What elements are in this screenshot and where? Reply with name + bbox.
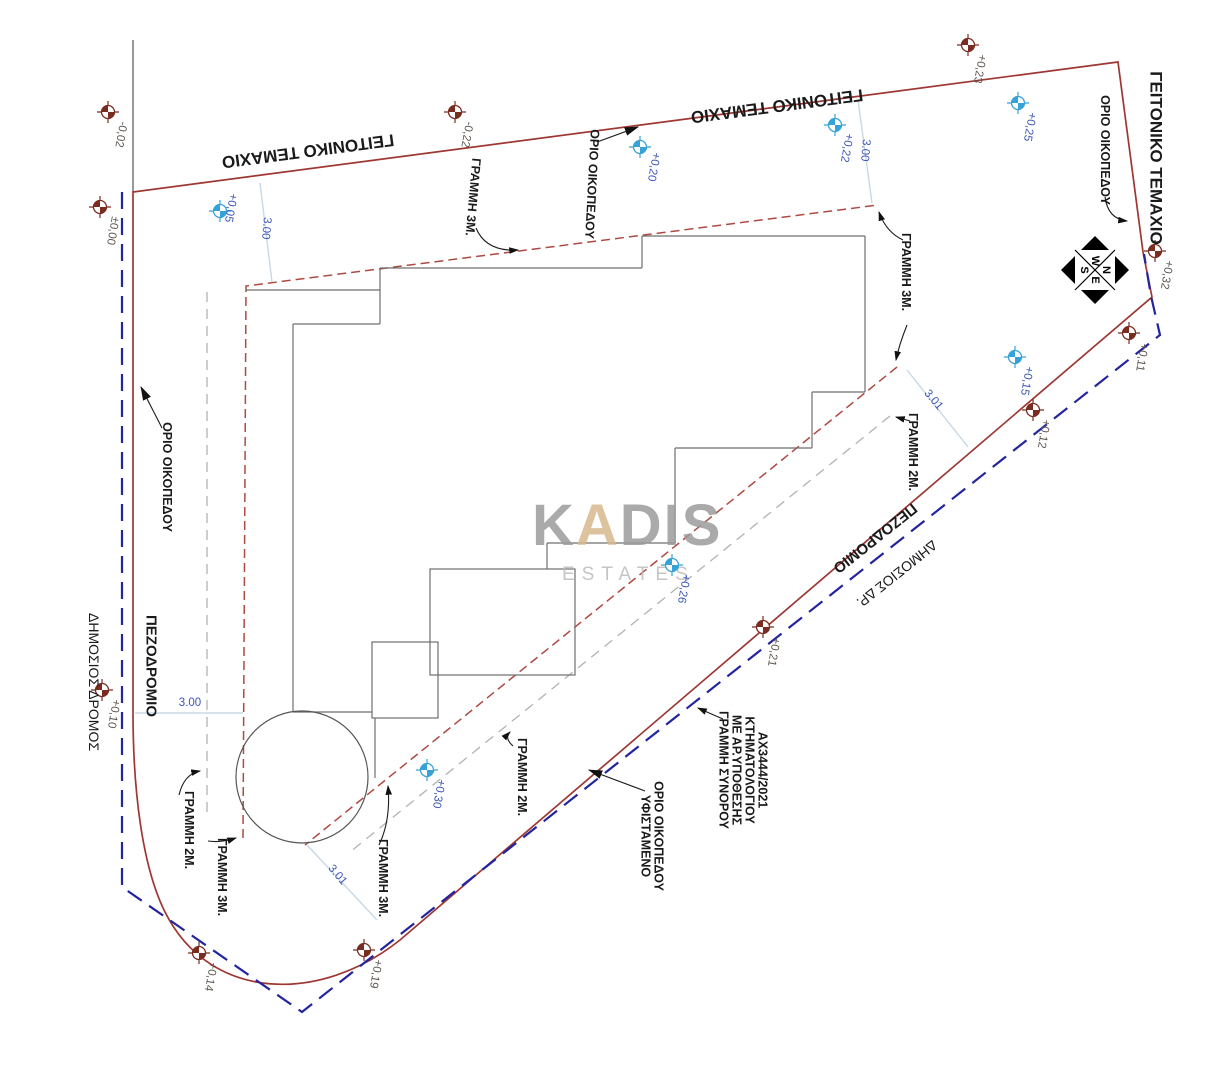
benchmark-marker-icon	[89, 196, 111, 218]
line-3m-top-left-line-0: ΓΡΑΜΜΗ 3Μ.	[463, 157, 484, 236]
plot-limit-right-line-0: ΟΡΙΟ ΟΙΚΟΠΕΔΟΥ	[1098, 95, 1112, 205]
leader-line-2m-bottom-mid	[508, 732, 513, 746]
elevation-label: +0,19	[367, 958, 384, 989]
benchmark-marker-icon	[416, 759, 438, 781]
elevation-label: +0,25	[1021, 111, 1038, 142]
elevation-label: +0,20	[645, 151, 662, 182]
benchmark-marker-icon	[97, 101, 119, 123]
elevation-label: +0,22	[838, 132, 855, 163]
elevation-label: +0,30	[430, 778, 447, 809]
elevation-label: -0,22	[458, 120, 474, 148]
elevation-label: +0,32	[1158, 259, 1175, 290]
compass-letter-right: N	[1100, 266, 1112, 274]
leader-arrows	[141, 127, 1127, 845]
elevation-label: ±0,00	[104, 215, 121, 245]
line-2m-right-line-0: ΓΡΑΜΜΗ 2Μ.	[906, 413, 920, 491]
elevation-label: +0,05	[222, 192, 239, 223]
benchmark-marker-icon	[444, 101, 466, 123]
elevation-label: +0,15	[1018, 365, 1035, 396]
dimension-label: 3.00	[259, 217, 273, 240]
line-2m-bottom-mid-line-0: ΓΡΑΜΜΗ 2Μ.	[515, 738, 529, 816]
benchmark-marker-icon	[1118, 322, 1140, 344]
leader-line-3m-mid-right-down	[896, 325, 907, 360]
line-3m-mid-right-line-0: ΓΡΑΜΜΗ 3Μ.	[899, 233, 913, 311]
plot-limit-top-line-0: ΟΡΙΟ ΟΙΚΟΠΕΔΟΥ	[582, 129, 602, 240]
leader-line-3m-top-left	[476, 228, 518, 250]
compass-letter-bottom: E	[1089, 276, 1101, 283]
site-plan-drawing: WNES 3.003.003.013.013.00 KADISESTATES -…	[0, 0, 1222, 1080]
cadastral-border-note-line-1: ΜΕ ΑΡ.ΥΠΟΘΕΣΗΣ	[730, 715, 744, 826]
dimension-label: 3.01	[922, 388, 946, 413]
neighbor-parcel-right: ΓΕΙΤΟΝΙΚΟ ΤΕΜΑΧΙΟ	[1147, 71, 1166, 244]
cadastral-border-note-line-2: ΚΤΗΜΑΤΟΛΟΓΙΟΥ	[743, 716, 757, 824]
benchmark-marker-icon	[824, 114, 846, 136]
elevation-label: -0,02	[112, 120, 128, 148]
compass-letter-top: W	[1089, 256, 1101, 267]
benchmark-marker-icon	[957, 34, 979, 56]
watermark-layer: KADISESTATES	[532, 493, 722, 585]
leader-line-3m-bottom-right	[379, 786, 389, 845]
dimension-label: 3.00	[858, 139, 872, 162]
site-plan-page: WNES 3.003.003.013.013.00 KADISESTATES -…	[0, 0, 1222, 1080]
benchmark-marker-icon	[1007, 92, 1029, 114]
benchmark-marker-icon	[1004, 346, 1026, 368]
benchmark-marker-icon	[752, 616, 774, 638]
cadastral-border-note-line-0: ΓΡΑΜΜΗ ΣΥΝΟΡΟΥ	[717, 711, 731, 830]
watermark-word: KADIS	[532, 493, 722, 558]
elevation-label: +0,11	[1133, 342, 1150, 372]
line-2m-bottom-left-line-0: ΓΡΑΜΜΗ 2Μ.	[182, 791, 196, 869]
building-block-rect	[430, 569, 575, 675]
public-road-left: ΔΗΜΟΣΙΟΣ ΔΡΟΜΟΣ	[86, 613, 102, 751]
setback-3m-red-dashed-b	[305, 367, 897, 845]
elevation-label: +0,14	[202, 961, 219, 992]
line-3m-bottom-left-line-0: ΓΡΑΜΜΗ 3Μ.	[215, 838, 229, 916]
compass-rose: WNES	[1061, 236, 1129, 304]
leader-plot-limit-left	[141, 387, 162, 428]
compass-letter-left: S	[1078, 266, 1090, 273]
elevation-label: +0,12	[1035, 418, 1052, 449]
leader-existing-plot-limit	[589, 770, 645, 791]
building-annex-rect	[372, 642, 438, 718]
kadis-watermark: KADISESTATES	[532, 493, 722, 585]
dimension-label: 3.01	[326, 863, 350, 888]
setback-2m-gray-dashed-b	[350, 416, 890, 852]
building-circular-structure	[236, 711, 368, 843]
cadastral-border-note-line-3: ΑΧ3444/2021	[756, 732, 770, 809]
elevation-label: +0,10	[105, 698, 122, 729]
elevation-label: +0,21	[765, 636, 782, 667]
existing-plot-limit-line-1: ΟΡΙΟ ΟΙΚΟΠΕΔΟΥ	[652, 781, 666, 891]
dimension-label: 3.00	[179, 697, 201, 709]
line-3m-bottom-right-line-0: ΓΡΑΜΜΗ 3Μ.	[376, 839, 390, 917]
neighbor-parcel-top-left: ΓΕΙΤΟΝΙΚΟ ΤΕΜΑΧΙΟ	[221, 130, 395, 171]
benchmark-marker-icon	[629, 136, 651, 158]
cadastral-boundary-blue-dashed	[122, 192, 1160, 1012]
existing-plot-limit-line-0: ΥΦΙΣΤΑΜΕΝΟ	[639, 795, 653, 878]
sidewalk-left: ΠΕΖΟΔΡΟΜΙΟ	[143, 615, 160, 717]
plot-limit-left-line-0: ΟΡΙΟ ΟΙΚΟΠΕΔΟΥ	[160, 422, 174, 532]
